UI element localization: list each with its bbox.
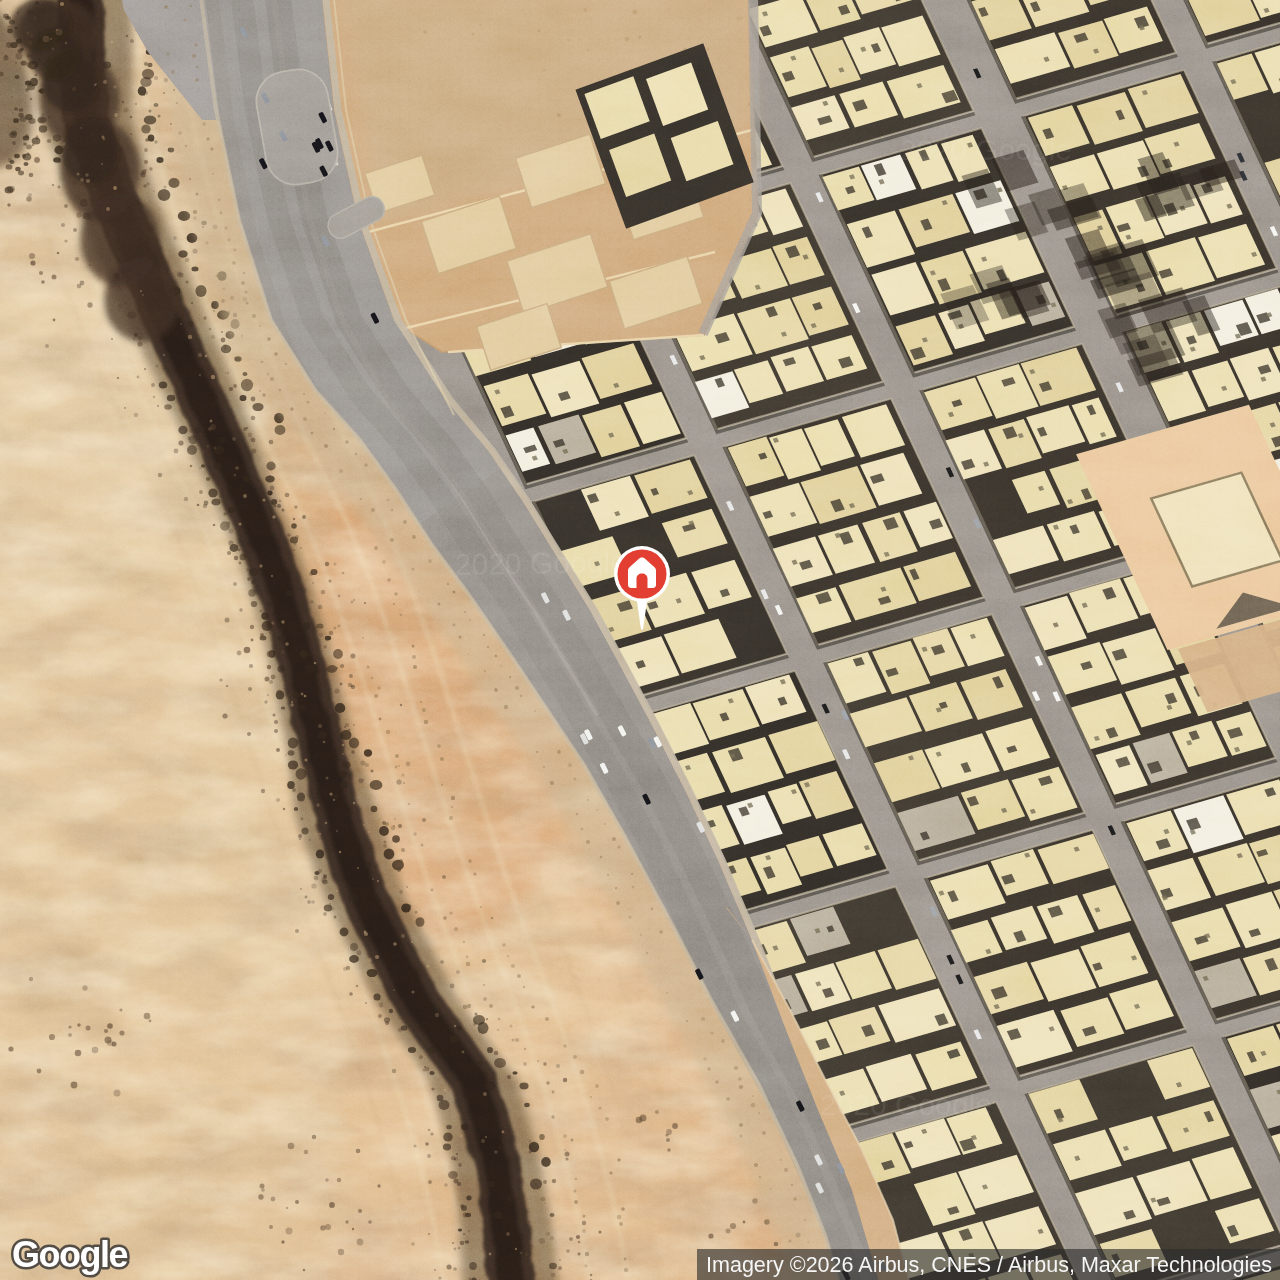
svg-text:Imagery ©2026 Airbus, CNES / A: Imagery ©2026 Airbus, CNES / Airbus, Max… bbox=[706, 1253, 1272, 1277]
svg-text:Google: Google bbox=[12, 1234, 127, 1275]
svg-text:2020 Google: 2020 Google bbox=[900, 133, 1072, 166]
svg-text:2020 Google: 2020 Google bbox=[820, 1088, 992, 1121]
svg-text:2020 Google: 2020 Google bbox=[455, 545, 627, 581]
